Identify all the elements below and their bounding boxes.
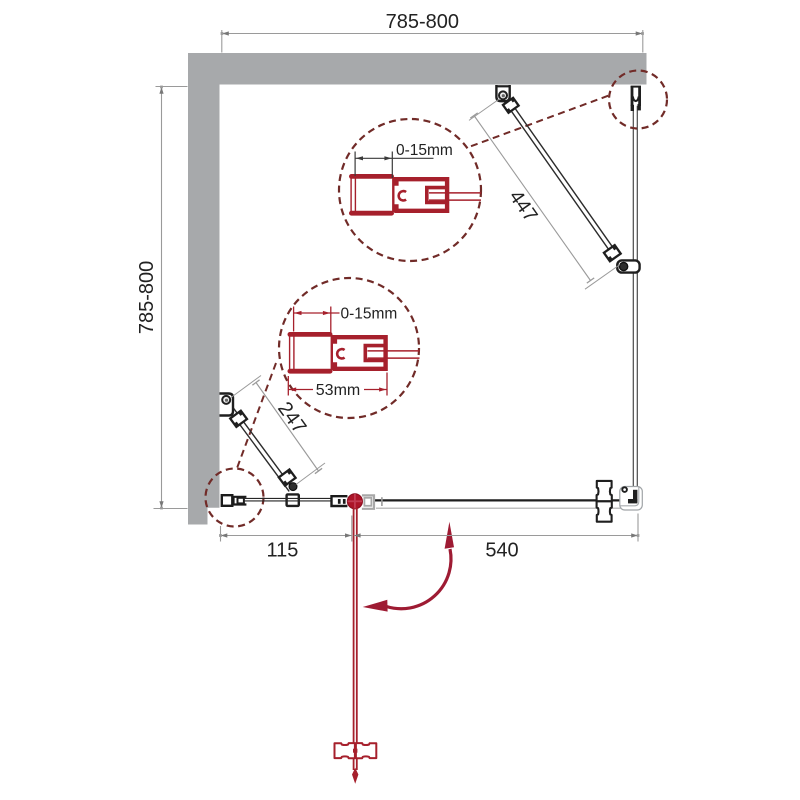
svg-text:53mm: 53mm — [316, 382, 360, 399]
svg-text:785-800: 785-800 — [386, 11, 459, 33]
svg-text:115: 115 — [267, 540, 299, 562]
svg-text:0-15mm: 0-15mm — [396, 142, 453, 159]
svg-text:0-15mm: 0-15mm — [341, 306, 398, 323]
svg-text:785-800: 785-800 — [136, 261, 158, 334]
svg-text:540: 540 — [485, 540, 518, 562]
